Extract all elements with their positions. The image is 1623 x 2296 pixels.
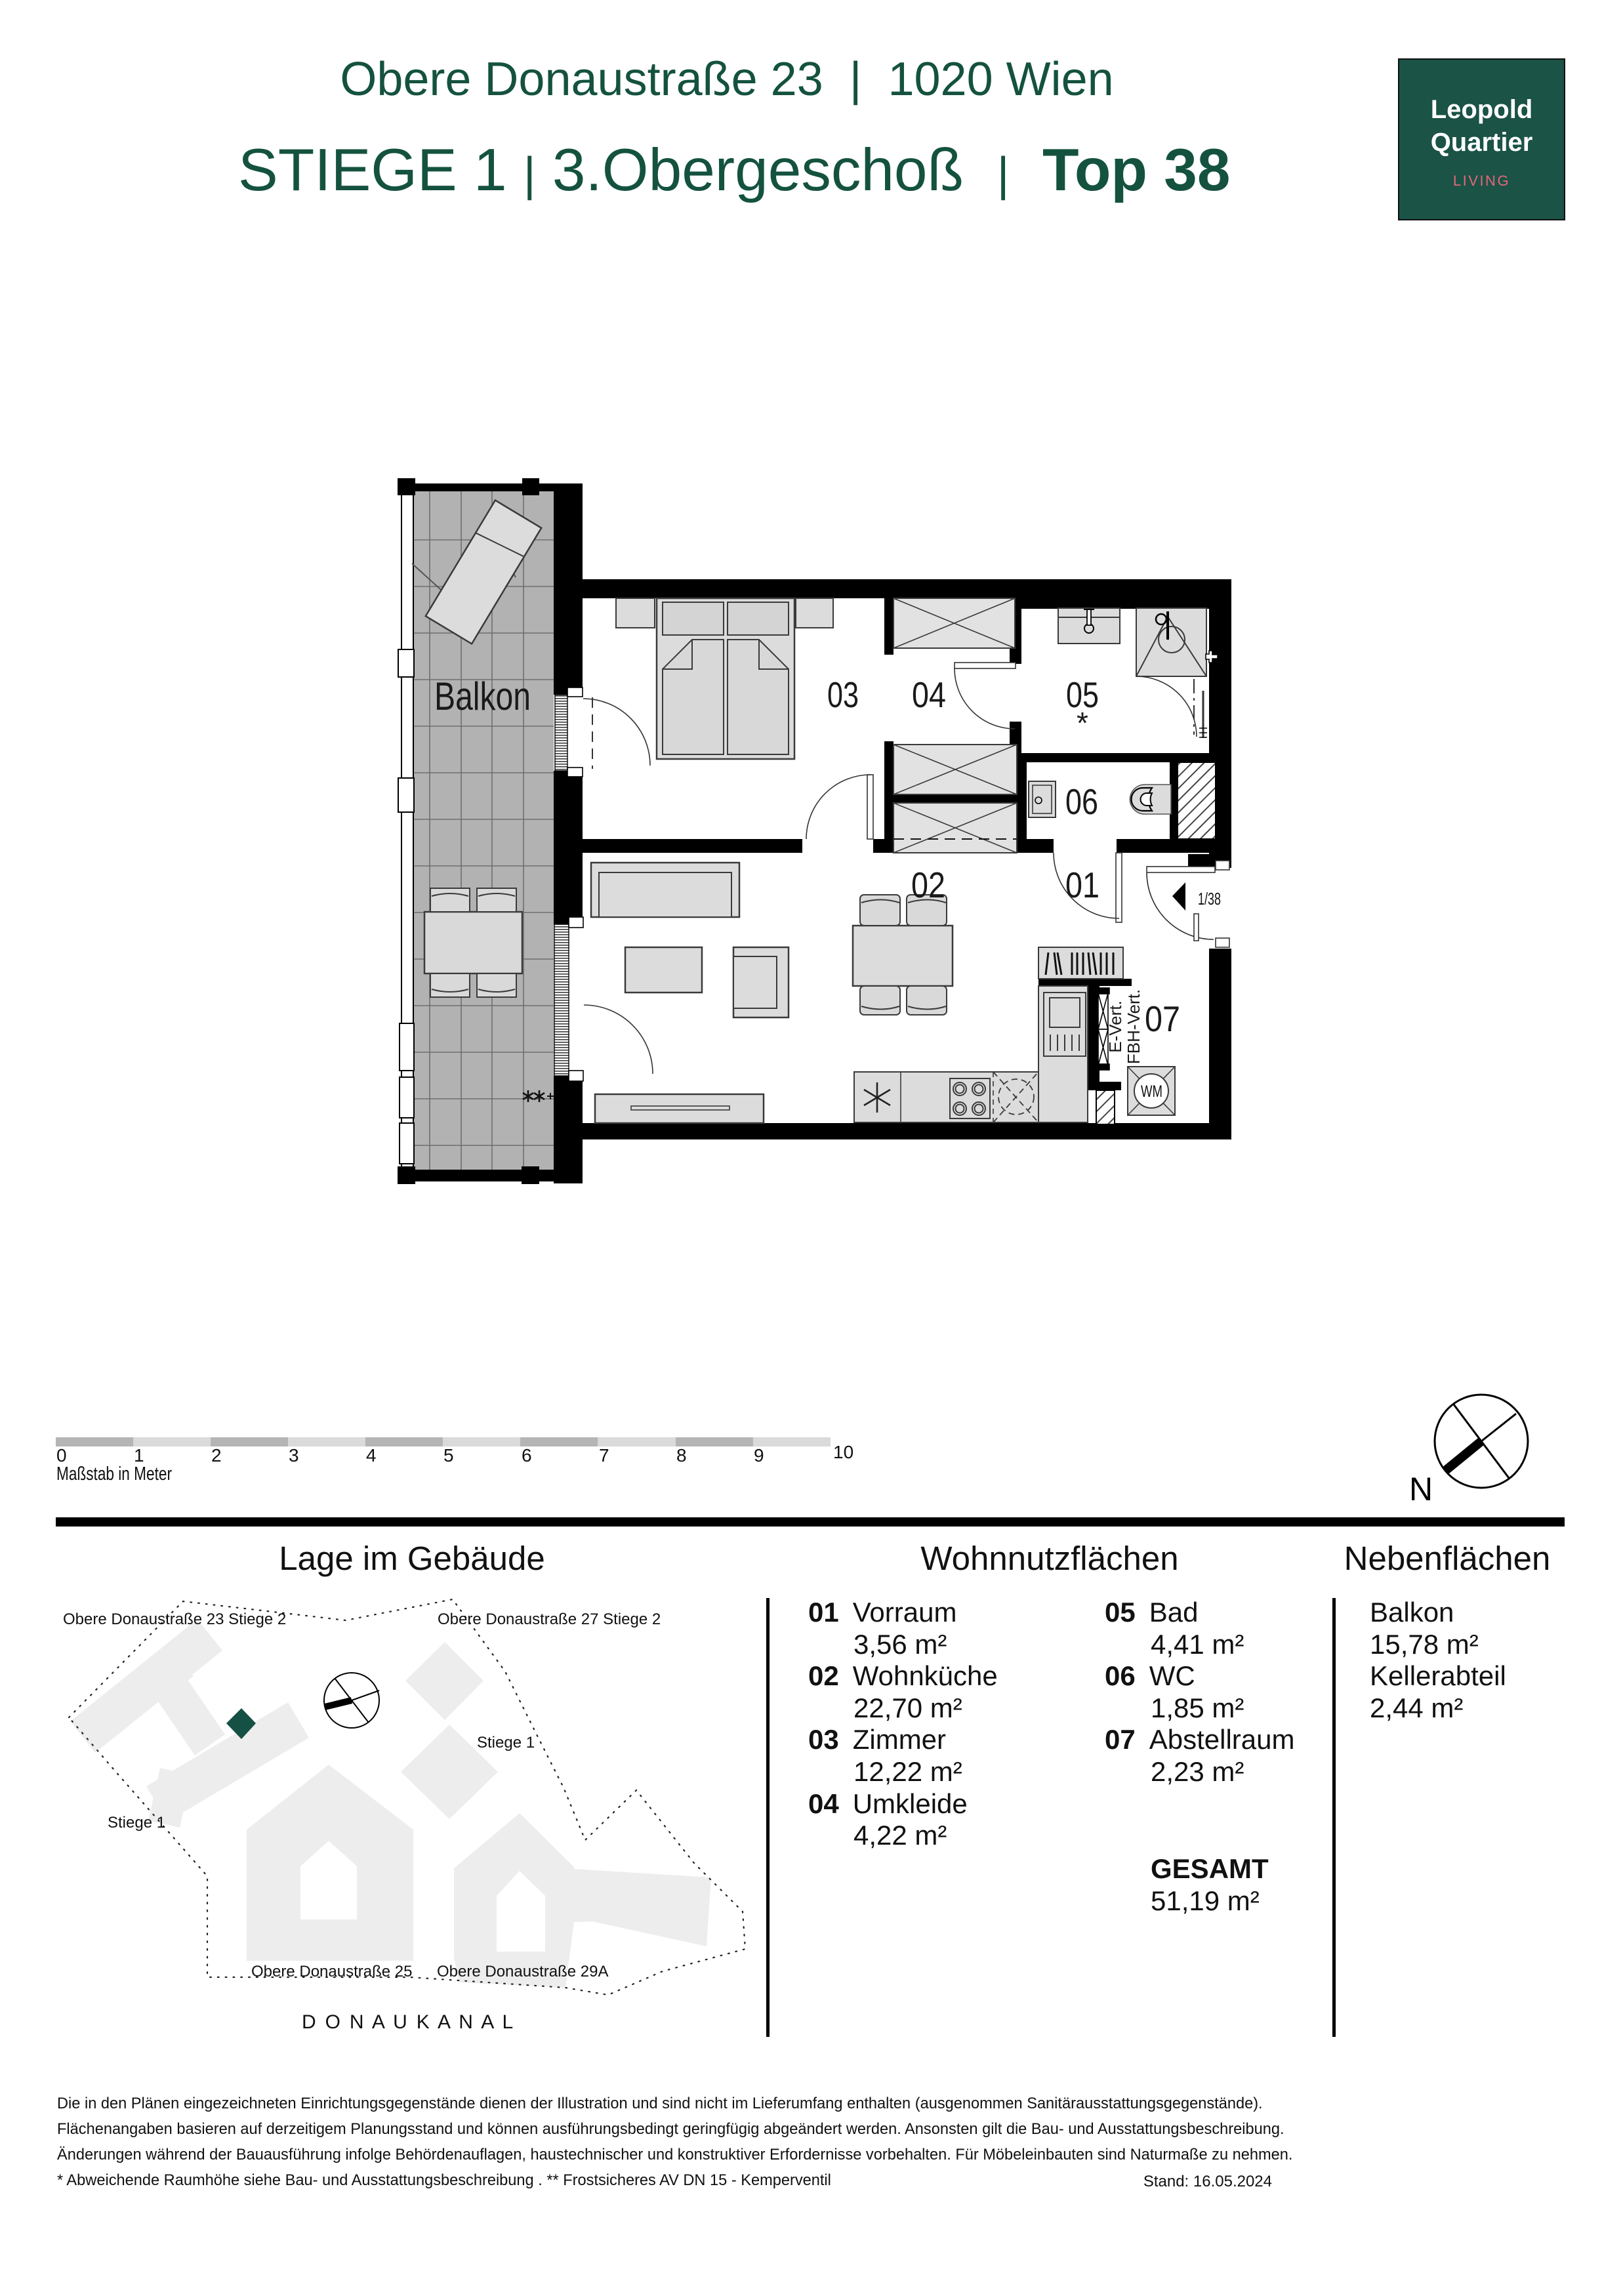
svg-text:FBH-Vert.: FBH-Vert. (1124, 989, 1143, 1064)
svg-text:1/38: 1/38 (1198, 889, 1221, 909)
svg-text:*: * (1077, 706, 1088, 740)
svg-text:0: 0 (56, 1445, 67, 1466)
svg-text:6: 6 (522, 1445, 532, 1466)
svg-text:7: 7 (599, 1445, 609, 1466)
svg-text:04: 04 (912, 674, 946, 715)
svg-text:N: N (1409, 1471, 1433, 1507)
svg-text:1: 1 (134, 1445, 144, 1466)
svg-text:8: 8 (676, 1445, 687, 1466)
svg-text:06: 06 (1065, 781, 1098, 822)
svg-text:3: 3 (289, 1445, 299, 1466)
svg-text:E-Vert.: E-Vert. (1105, 1000, 1125, 1052)
svg-text:10: 10 (833, 1442, 853, 1462)
svg-text:Obere Donaustraße 23 Stiege 2: Obere Donaustraße 23 Stiege 2 (63, 1610, 286, 1628)
svg-text:Stiege 1: Stiege 1 (477, 1734, 535, 1752)
svg-text:5: 5 (443, 1445, 454, 1466)
svg-text:Stiege 1: Stiege 1 (108, 1814, 165, 1832)
svg-text:Obere Donaustraße 29A: Obere Donaustraße 29A (437, 1963, 608, 1980)
svg-text:WM: WM (1141, 1082, 1162, 1101)
svg-text:D O N A U K A N A L: D O N A U K A N A L (302, 2011, 515, 2033)
svg-text:Obere Donaustraße 27 Stiege 2: Obere Donaustraße 27 Stiege 2 (438, 1610, 661, 1628)
svg-text:02: 02 (911, 865, 945, 905)
svg-text:07: 07 (1145, 998, 1180, 1039)
svg-text:4: 4 (366, 1445, 377, 1466)
svg-text:Balkon: Balkon (434, 674, 531, 718)
svg-text:01: 01 (1065, 865, 1099, 905)
svg-text:Obere Donaustraße 25: Obere Donaustraße 25 (251, 1963, 412, 1980)
svg-text:2: 2 (211, 1445, 222, 1466)
svg-text:03: 03 (827, 674, 859, 715)
svg-text:9: 9 (754, 1445, 764, 1466)
